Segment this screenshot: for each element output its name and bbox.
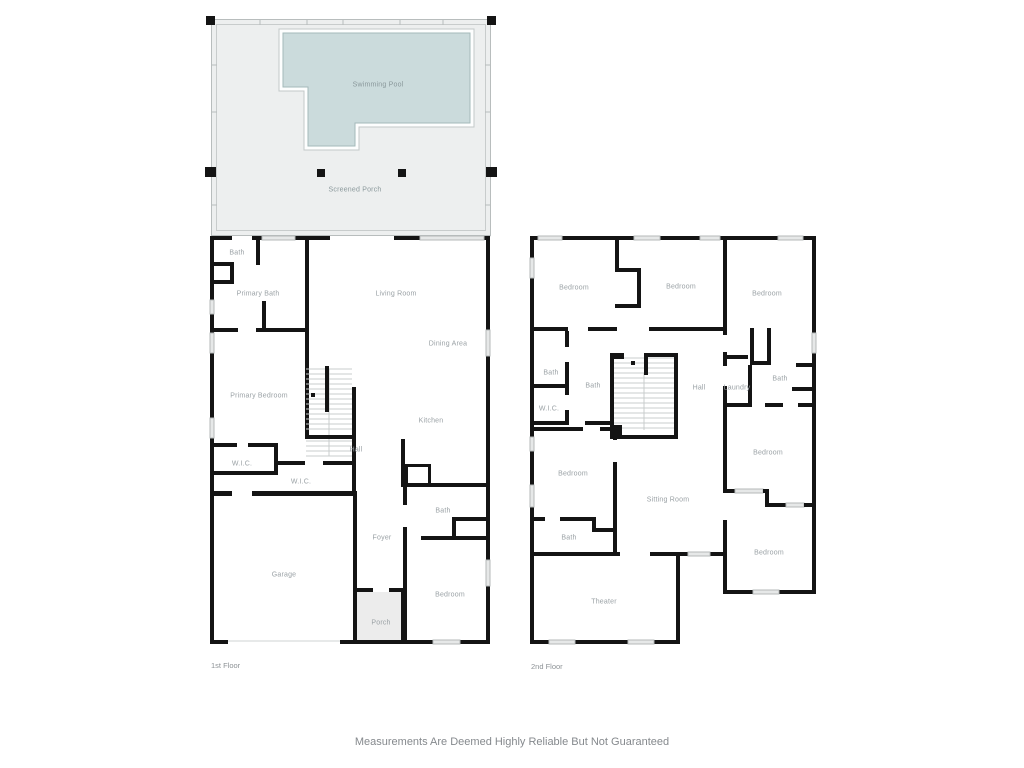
room-label: Theater <box>591 599 617 606</box>
room-label: Bedroom <box>435 592 465 599</box>
floorplan-drawing <box>0 0 1024 768</box>
room-label: Bath <box>772 376 787 383</box>
room-label: W.I.C. <box>291 479 311 486</box>
second-floor-name: 2nd Floor <box>531 662 563 671</box>
room-label: Laundry <box>724 385 751 392</box>
room-label: Bath <box>585 383 600 390</box>
room-label: W.I.C. <box>232 461 252 468</box>
room-label: Bedroom <box>666 284 696 291</box>
room-label: Living Room <box>375 291 416 298</box>
room-label: Hall <box>693 385 706 392</box>
room-label: Bath <box>561 535 576 542</box>
swimming-pool-label: Swimming Pool <box>353 82 404 89</box>
floorplan-canvas: Swimming Pool Screened Porch BathPrimary… <box>0 0 1024 768</box>
first-floor-name: 1st Floor <box>211 661 240 670</box>
room-label: Foyer <box>373 535 392 542</box>
room-label: Sitting Room <box>647 497 689 504</box>
room-label: Bedroom <box>558 471 588 478</box>
room-label: Bath <box>229 250 244 257</box>
room-label: Garage <box>272 572 297 579</box>
room-label: Bedroom <box>754 550 784 557</box>
stairs-second-floor <box>610 353 678 439</box>
disclaimer-text: Measurements Are Deemed Highly Reliable … <box>0 736 1024 748</box>
room-label: Bath <box>435 508 450 515</box>
screened-porch-label: Screened Porch <box>329 187 382 194</box>
room-label: Primary Bath <box>237 291 280 298</box>
room-label: Primary Bedroom <box>230 393 287 400</box>
room-label: Kitchen <box>419 418 444 425</box>
room-label: Porch <box>371 620 390 627</box>
room-label: W.I.C. <box>539 406 559 413</box>
room-label: Bedroom <box>559 285 589 292</box>
room-label: Bedroom <box>753 450 783 457</box>
room-label: Dining Area <box>429 341 467 348</box>
room-label: Bath <box>543 370 558 377</box>
screened-porch-area <box>205 16 497 237</box>
room-label: Bedroom <box>752 291 782 298</box>
room-label: Hall <box>350 447 363 454</box>
